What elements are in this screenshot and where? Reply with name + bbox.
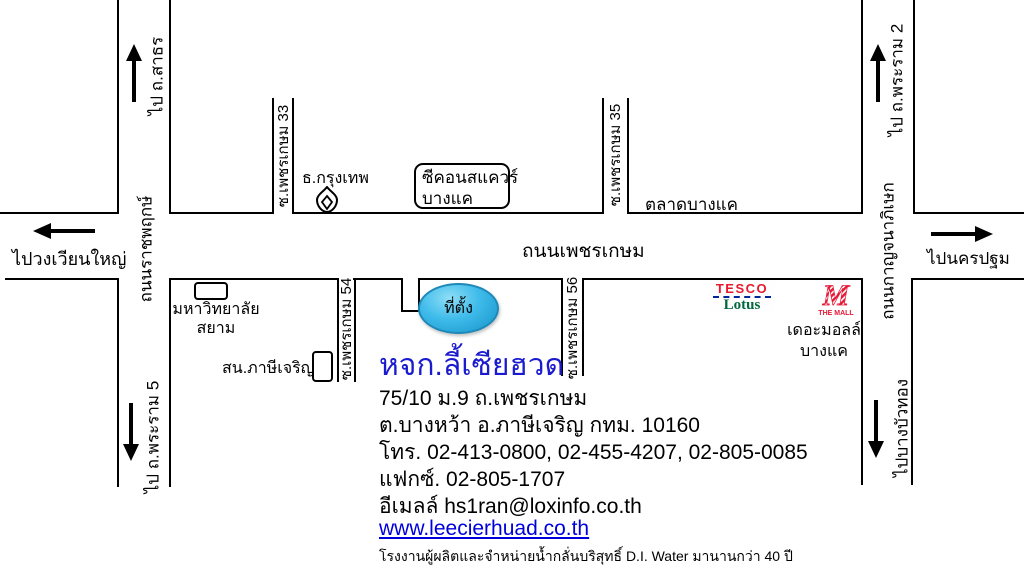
building-rect-police — [312, 351, 333, 382]
tesco-lotus-logo: TESCO Lotus — [710, 282, 774, 313]
road-label-soi54: ซ.เพชรเกษม 54 — [334, 278, 358, 380]
road-line — [170, 212, 273, 214]
siam-university-line1: มหาวิทยาลัย — [170, 300, 262, 319]
the-mall-line1: เดอะมอลล์ — [782, 320, 866, 341]
location-marker: ที่ตั้ง — [418, 283, 499, 334]
road-line — [915, 212, 1024, 214]
lotus-logo-text: Lotus — [710, 298, 774, 313]
the-mall-line2: บางแค — [782, 341, 866, 362]
road-line — [117, 0, 119, 214]
place-label-the-mall: เดอะมอลล์ บางแค — [782, 320, 866, 362]
direction-label-wongwianyai: ไปวงเวียนใหญ่ — [12, 244, 126, 273]
seacon-line2: บางแค — [422, 188, 508, 209]
company-website-link[interactable]: www.leecierhuad.co.th — [379, 517, 589, 541]
seacon-line1: ซีคอนสแควร์ — [422, 167, 508, 188]
location-marker-label: ที่ตั้ง — [444, 296, 473, 321]
entrance-notch-line — [401, 278, 403, 312]
road-label-kanchanaphisek: ถนนกาญจนาภิเษก — [875, 182, 902, 320]
building-rect-university — [194, 282, 228, 300]
mall-m-mark: M — [822, 279, 851, 312]
road-line — [170, 278, 337, 280]
road-line — [419, 278, 563, 280]
road-line — [911, 278, 1024, 280]
siam-university-line2: สยาม — [170, 319, 262, 338]
road-line — [0, 212, 118, 214]
arrow-right-icon — [931, 224, 993, 244]
direction-label-sathorn: ไป ถ.สาธร — [144, 37, 171, 116]
bangkok-bank-logo-icon — [314, 186, 340, 213]
direction-label-bangbuathong: ไปบางบัวทอง — [889, 379, 916, 477]
tesco-logo-text: TESCO — [710, 282, 774, 295]
direction-label-rama5: ไป ถ.พระราม 5 — [140, 381, 167, 494]
road-line — [5, 278, 118, 280]
place-label-talad-bangkae: ตลาดบางแค — [645, 191, 738, 218]
the-mall-wordmark: THE MALL — [818, 310, 854, 317]
road-label-soi33: ซ.เพชรเกษม 33 — [271, 105, 295, 207]
road-line — [861, 278, 863, 485]
road-label-ratchaphruek: ถนนราชพฤกษ์ — [133, 196, 160, 303]
the-mall-logo: M THE MALL — [813, 279, 859, 319]
place-label-police-station: สน.ภาษีเจริญ — [222, 356, 314, 381]
place-label-siam-university: มหาวิทยาลัย สยาม — [170, 300, 262, 338]
road-label-phetkasem: ถนนเพชรเกษม — [522, 236, 645, 266]
road-line — [861, 0, 863, 214]
arrow-up-icon — [122, 44, 146, 102]
direction-label-rama2: ไป ถ.พระราม 2 — [884, 24, 911, 137]
company-tagline: โรงงานผู้ผลิตและจำหน่ายน้ำกลั่นบริสุทธิ์… — [379, 546, 793, 568]
road-label-soi35: ซ.เพชรเกษม 35 — [603, 104, 627, 206]
place-box-seacon-square: ซีคอนสแควร์ บางแค — [414, 163, 510, 209]
location-map: ไป ถ.สาธร ถนนราชพฤกษ์ ไป ถ.พระราม 5 ซ.เพ… — [0, 0, 1024, 568]
road-line — [353, 278, 403, 280]
arrow-left-icon — [33, 221, 95, 241]
arrow-down-icon — [864, 400, 888, 458]
direction-label-nakhonpathom: ไปนครปฐม — [927, 245, 1010, 272]
road-line — [913, 0, 915, 214]
road-line — [627, 98, 629, 214]
